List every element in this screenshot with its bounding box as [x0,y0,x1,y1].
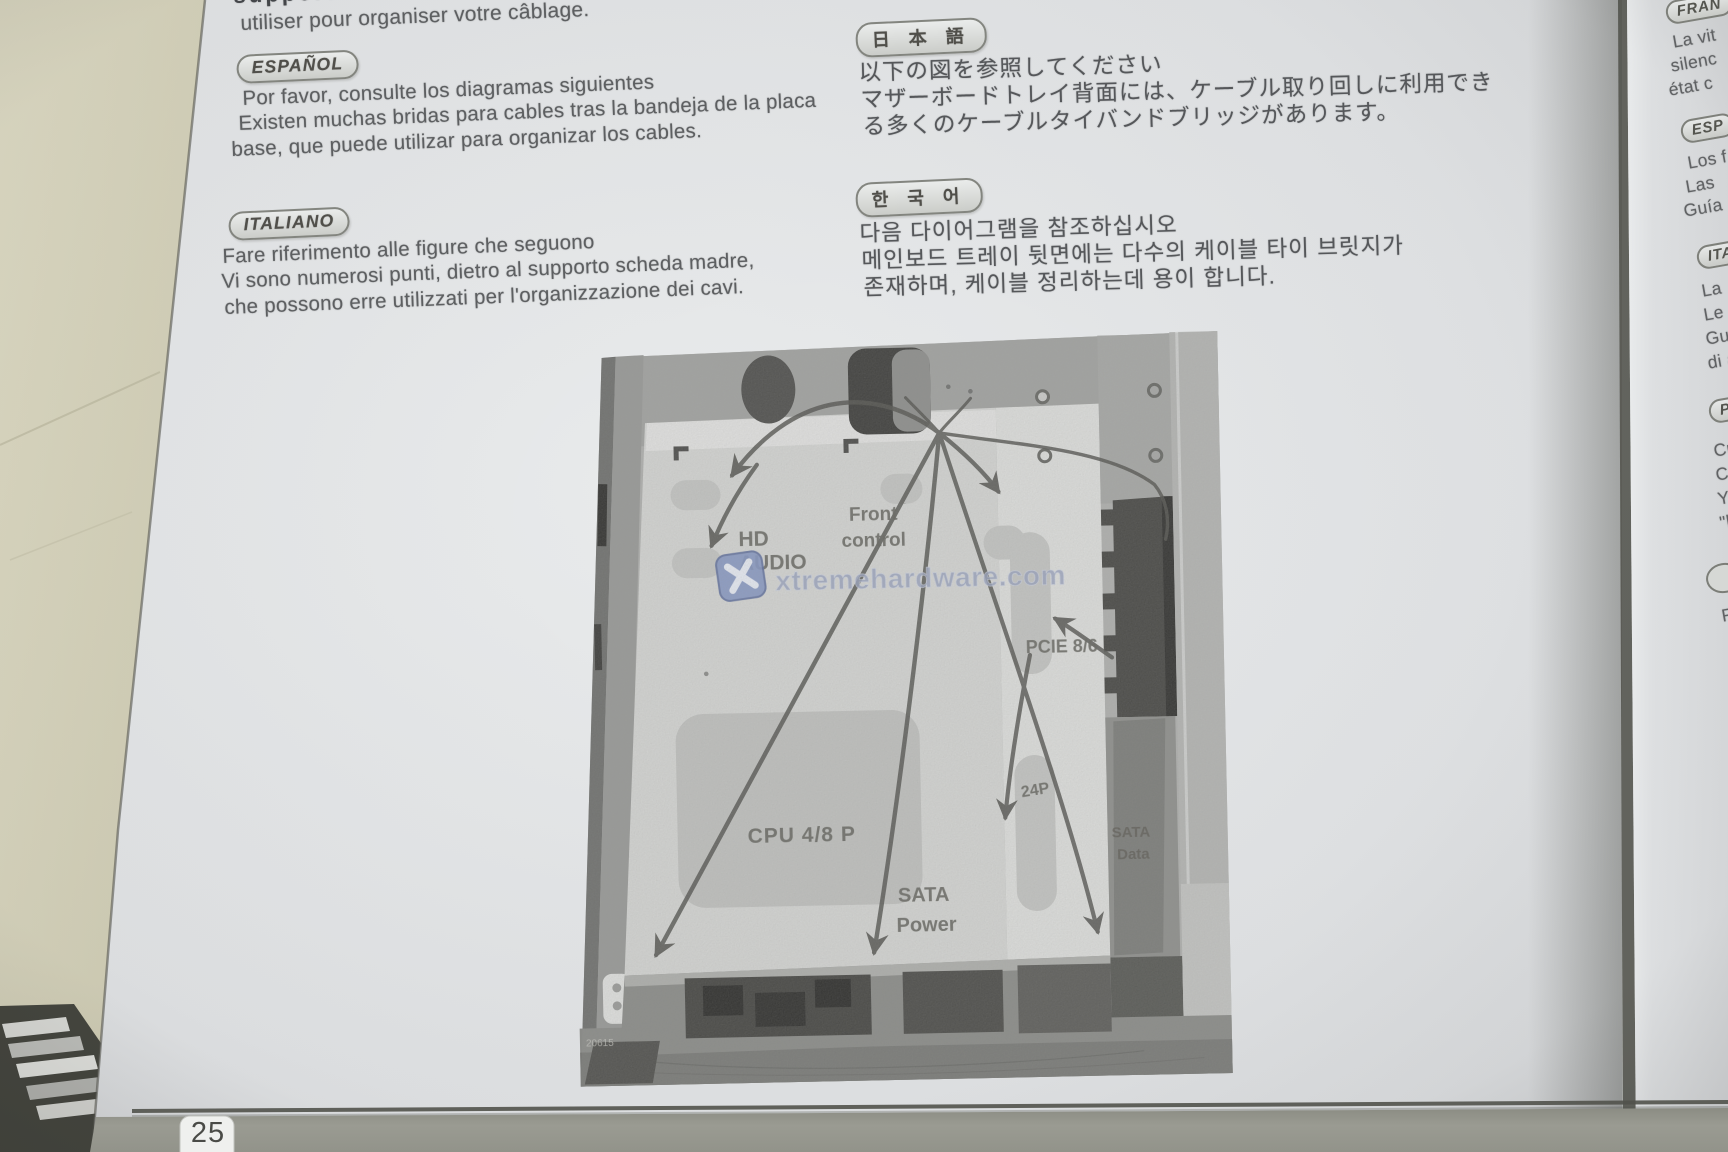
next-page-p-line-1: Cu [1712,437,1728,462]
next-page-it-line-2: Le [1702,302,1725,326]
photocopy-grain [549,323,1235,1092]
next-page-it-line-3: Gu [1704,325,1728,350]
next-page-it-line-1: La [1700,278,1723,302]
espanol-badge: ESPAÑOL [236,49,359,83]
page-number: 25 [183,1117,233,1150]
cable-routing-diagram: HD AUDIO Front control PCIE 8/6 24P CPU … [549,323,1235,1092]
italiano-badge: ITALIANO [228,207,350,241]
next-page-it-line-4: di a [1706,348,1728,374]
next-page-p-line-2: C [1714,463,1728,486]
korean-badge: 한 국 어 [855,177,983,218]
photographed-manual-page: { "colors": { "paper": "#e4e6e8", "table… [0,0,1728,1152]
